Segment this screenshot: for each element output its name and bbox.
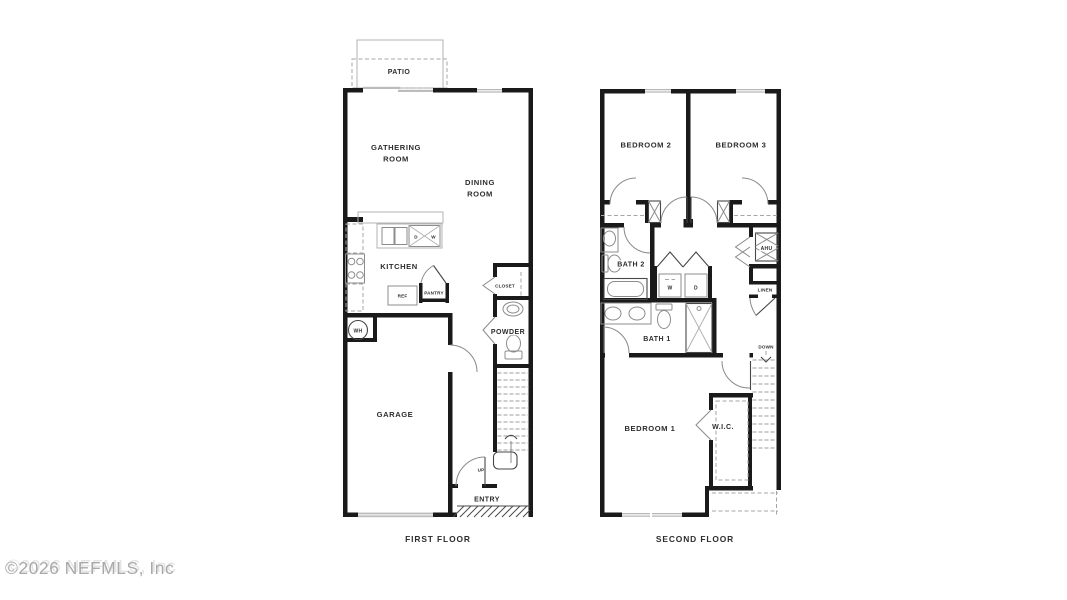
up-label: UP [478, 468, 485, 473]
garage-label: GARAGE [377, 410, 414, 419]
svg-text:ROOM: ROOM [467, 190, 493, 199]
bedroom2-door [661, 197, 687, 223]
bedroom2-label: BEDROOM 2 [621, 141, 672, 150]
wic-label: W.I.C. [712, 424, 734, 431]
entry-label: ENTRY [474, 497, 500, 504]
powder-sink [503, 302, 523, 316]
laundry-closet [653, 252, 712, 302]
bath1-vanity [601, 303, 651, 324]
laundry-bifold-doors [657, 252, 709, 267]
first-floor-labels: PATIO GATHERING ROOM DINING ROOM KITCHEN… [354, 69, 526, 544]
dishwasher-w-label: W [431, 235, 436, 240]
bedroom3-bifold-door [718, 201, 730, 223]
bedroom1-label: BEDROOM 1 [625, 424, 676, 433]
svg-text:ROOM: ROOM [383, 155, 409, 164]
mls-watermark: ©2026 NEFMLS, Inc [5, 558, 174, 579]
dishwasher-d-label: D [414, 235, 418, 240]
bedroom3-door [691, 197, 717, 223]
kitchen-sink [382, 228, 394, 245]
floorplan-svg: PATIO GATHERING ROOM DINING ROOM KITCHEN… [0, 0, 1067, 600]
patio-label: PATIO [388, 69, 411, 76]
pantry-closet [419, 266, 449, 304]
dining-room-label: DINING [465, 178, 495, 187]
stairs-down [716, 351, 776, 490]
bedroom2-closet [600, 178, 661, 223]
second-floor-caption: SECOND FLOOR [656, 534, 734, 544]
stairs-up [493, 368, 529, 469]
down-label: DOWN [758, 345, 774, 350]
dining-window [477, 89, 502, 92]
entry-stoop-hatch [453, 506, 530, 517]
hall-closet [483, 263, 533, 300]
kitchen-label: KITCHEN [380, 262, 418, 271]
garage-entry-door [450, 345, 477, 372]
first-floor-plan: PATIO GATHERING ROOM DINING ROOM KITCHEN… [343, 40, 533, 544]
second-floor-plan: BEDROOM 2 BEDROOM 3 BATH 2 W D AHU LINEN… [600, 89, 781, 544]
kitchen-island [358, 212, 443, 223]
powder-label: POWDER [491, 329, 525, 336]
closet-label: CLOSET [495, 284, 515, 289]
bedroom3-label: BEDROOM 3 [716, 141, 767, 150]
patio [352, 40, 447, 88]
bath2-label: BATH 2 [617, 262, 644, 269]
bath1-shower [686, 304, 712, 353]
bedroom2-window [645, 89, 671, 92]
bedroom1-door [722, 361, 750, 388]
entry-area [448, 457, 530, 517]
bedroom3-closet [718, 178, 779, 223]
ahu-bifold-doors [736, 237, 751, 267]
linen-closet [749, 281, 780, 316]
bath1-door [603, 327, 629, 353]
garage-door [358, 513, 433, 518]
wic-door [696, 410, 711, 440]
bedroom2-bifold-door [649, 201, 661, 223]
linen-label: LINEN [758, 288, 773, 293]
range-cooktop [346, 254, 365, 283]
bath1-label: BATH 1 [643, 336, 670, 343]
wh-label: WH [354, 329, 363, 335]
open-below-area [705, 486, 778, 517]
kitchen-area [343, 212, 452, 342]
ahu-closet [736, 227, 781, 284]
bath2-door [624, 227, 650, 253]
bath1-toilet [656, 304, 672, 329]
bedrooms-2-3 [600, 89, 780, 228]
floorplan-image: PATIO GATHERING ROOM DINING ROOM KITCHEN… [0, 0, 1067, 600]
patio-slider-door [363, 87, 400, 89]
bedroom1-window [622, 513, 682, 516]
linen-door [756, 298, 775, 316]
bath2-tub [604, 279, 647, 300]
powder-toilet [505, 335, 522, 359]
pantry-label: PANTRY [424, 291, 444, 296]
ahu-label: AHU [761, 246, 773, 252]
first-floor-caption: FIRST FLOOR [405, 534, 471, 544]
walk-in-closet [696, 393, 753, 486]
gathering-room-label: GATHERING [371, 143, 421, 152]
bedroom3-window [736, 89, 765, 92]
bath1-room [600, 298, 717, 358]
ref-label: REF [398, 294, 408, 299]
dryer-label: D [694, 286, 698, 292]
washer-label: W [667, 286, 672, 292]
counter-left [346, 224, 363, 311]
